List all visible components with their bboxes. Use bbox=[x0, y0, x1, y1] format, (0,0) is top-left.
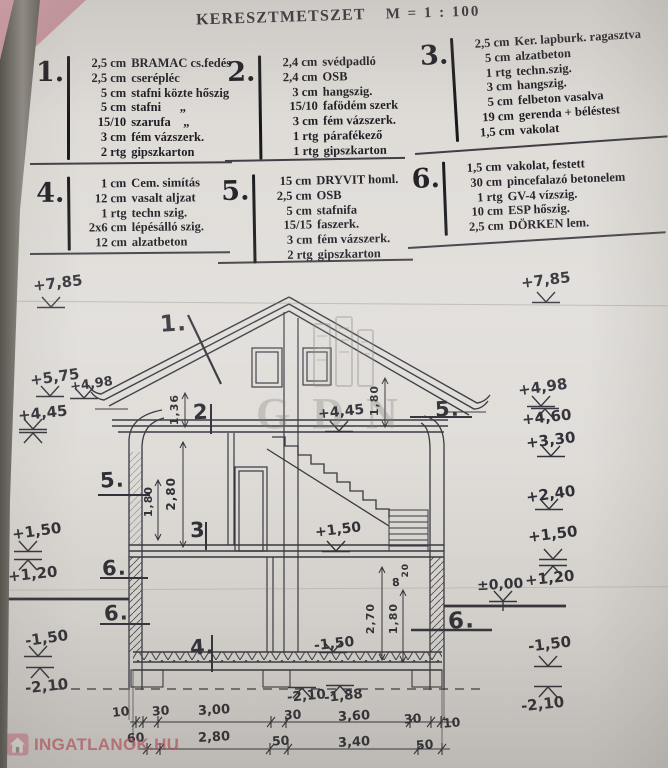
legend-item: 3 cmfém vázszerk. bbox=[74, 130, 231, 145]
list-divider-bar bbox=[67, 177, 71, 251]
layer-list-2: 2. 2,4 cmsvédpadló 2,4 cmOSB 3 cmhangszi… bbox=[227, 54, 399, 160]
dimension-value: 1,80 bbox=[143, 486, 154, 517]
legend-qty: 2,5 cm bbox=[74, 71, 131, 86]
chain-dimension: 10 bbox=[442, 716, 460, 730]
legend-text: DRYVIT homl. bbox=[316, 172, 398, 188]
chain-dimension: 3,00 bbox=[198, 703, 231, 718]
layer-list-number: 5. bbox=[221, 177, 254, 263]
layer-callout: 2 bbox=[192, 402, 209, 424]
legend-text: DÖRKEN lem. bbox=[508, 215, 589, 233]
legend-text: vakolat bbox=[519, 121, 559, 138]
legend-text: techn szig. bbox=[131, 205, 187, 220]
legend-qty: 15/10 bbox=[74, 115, 131, 130]
ingatlanok-logo: INGATLANOK.HU bbox=[6, 733, 179, 756]
layer-list-5: 5. 15 cmDRYVIT homl. 2,5 cmOSB 5 cmstafn… bbox=[221, 172, 400, 264]
chain-dimension: 50 bbox=[416, 738, 434, 752]
legend-text: gipszkarton bbox=[317, 246, 380, 262]
legend-qty: 2 rtg bbox=[74, 145, 131, 160]
list-divider-bar bbox=[252, 174, 257, 263]
legend-text: szarufa „ bbox=[131, 115, 189, 130]
watermark-logo bbox=[312, 316, 382, 390]
layer-callout: 3 bbox=[189, 520, 206, 542]
chain-dimension: 30 bbox=[284, 709, 302, 722]
legend-qty: 5 cm bbox=[74, 86, 131, 101]
legend-item: 2x6 cmlépésálló szig. bbox=[75, 220, 204, 236]
legend-text: gipszkarton bbox=[323, 143, 386, 159]
legend-text: fafödém szerk bbox=[323, 98, 399, 114]
legend-text: fém vázszerk. bbox=[323, 113, 396, 129]
legend-item: 2,5 cmBRAMAC cs.fedés bbox=[74, 56, 231, 71]
layer-callout: 6. bbox=[101, 557, 127, 579]
dimension-value: 1,36 bbox=[169, 394, 180, 425]
layer-list-6: 6. 1,5 cmvakolat, festett 30 cmpincefala… bbox=[411, 155, 627, 237]
dimension-value: 1,80 bbox=[388, 603, 399, 634]
legend-qty: 15/10 bbox=[266, 99, 323, 115]
legend-qty: 1 cm bbox=[74, 176, 131, 191]
legend-qty: 1 rtg bbox=[74, 206, 131, 221]
legend-qty: 5 cm bbox=[74, 100, 131, 115]
house-icon bbox=[6, 733, 29, 756]
list-divider-bar bbox=[258, 56, 262, 160]
legend-item: 1 cmCem. simítás bbox=[74, 175, 203, 191]
level-mark-symbols bbox=[14, 292, 567, 698]
layer-list-number: 6. bbox=[411, 165, 445, 237]
legend-item: 2,5 cmcserépléc bbox=[74, 71, 231, 86]
dimension-value: 1,80 bbox=[369, 385, 380, 416]
legend-text: párafékező bbox=[323, 128, 382, 144]
photographed-blueprint: KERESZTMETSZETM = 1 : 100 1. 2,5 cmBRAMA… bbox=[0, 0, 668, 768]
legend-item: 2 rtggipszkarton bbox=[260, 246, 399, 263]
layer-callout: 4. bbox=[189, 636, 215, 659]
layer-callout: 1. bbox=[159, 312, 187, 337]
legend-text: alzatbeton bbox=[132, 235, 188, 250]
layer-list-number: 2. bbox=[227, 59, 260, 160]
layer-callout: 6. bbox=[103, 602, 129, 625]
dimension-value: 2,80 bbox=[165, 477, 177, 511]
legend-text: stafni közte hőszig bbox=[131, 86, 229, 101]
layer-callout: 5. bbox=[434, 398, 460, 420]
legend-text: OSB bbox=[322, 69, 347, 84]
legend-qty: 3 cm bbox=[266, 84, 323, 100]
floor-slabs bbox=[112, 420, 448, 557]
layer-list-1: 1. 2,5 cmBRAMAC cs.fedés 2,5 cmcserépléc… bbox=[36, 56, 231, 160]
legend-qty: 12 cm bbox=[75, 235, 132, 250]
legend-qty: 12 cm bbox=[74, 191, 131, 206]
drawing-scale: M = 1 : 100 bbox=[385, 4, 480, 23]
brand-name: INGATLANOK.HU bbox=[34, 735, 179, 755]
basement-slab bbox=[55, 652, 480, 689]
legend-text: lépésálló szig. bbox=[132, 220, 204, 236]
legend-qty: 2,4 cm bbox=[265, 55, 322, 71]
title-text: KERESZTMETSZET bbox=[196, 6, 366, 28]
legend-text: vasalt aljzat bbox=[131, 190, 195, 205]
legend-qty: 15 cm bbox=[259, 173, 316, 189]
list-underline bbox=[30, 251, 230, 254]
chain-dimension: 50 bbox=[272, 735, 290, 748]
legend-text: stafnifa bbox=[317, 202, 358, 217]
legend-text: OSB bbox=[316, 188, 341, 203]
layer-list-4: 4. 1 cmCem. simítás 12 cmvasalt aljzat 1… bbox=[36, 175, 204, 251]
legend-qty: 2,5 cm bbox=[451, 218, 509, 235]
legend-text: cserépléc bbox=[131, 71, 180, 86]
drawing-title: KERESZTMETSZETM = 1 : 100 bbox=[196, 3, 481, 30]
layer-callout: 6. bbox=[447, 609, 475, 633]
legend-text: gipszkarton bbox=[131, 145, 194, 160]
legend-qty: 3 cm bbox=[260, 233, 317, 249]
legend-text: hangszig. bbox=[323, 84, 373, 99]
dimension-value: 8 bbox=[392, 577, 401, 589]
ground-lines bbox=[0, 599, 566, 606]
legend-item: 1 rtgtechn szig. bbox=[74, 205, 203, 221]
legend-item: 12 cmalzatbeton bbox=[75, 234, 204, 250]
legend-item: 5 cmstafni közte hőszig bbox=[74, 86, 231, 101]
dimension-value: 2,70 bbox=[365, 603, 376, 634]
layer-list-3: 3. 2,5 cmKer. lapburk. ragasztva 5 cmalz… bbox=[419, 27, 647, 144]
legend-item: 15/10szarufa „ bbox=[74, 115, 231, 130]
legend-qty: 1 rtg bbox=[266, 143, 323, 159]
chain-dimension: 2,80 bbox=[198, 730, 231, 745]
legend-qty: 2,4 cm bbox=[265, 69, 322, 85]
legend-qty: 5 cm bbox=[260, 203, 317, 219]
chain-dimension: 30 bbox=[152, 704, 170, 718]
legend-text: BRAMAC cs.fedés bbox=[131, 56, 231, 71]
chain-dimension: 10 bbox=[111, 705, 130, 719]
layer-callout: 5. bbox=[99, 469, 125, 491]
legend-text: Cem. simítás bbox=[131, 175, 200, 191]
legend-item: 5 cmstafni „ bbox=[74, 100, 231, 115]
legend-text: stafni „ bbox=[131, 100, 186, 115]
legend-item: 2 rtggipszkarton bbox=[74, 145, 231, 160]
elevation-label: -1,50 bbox=[313, 635, 355, 653]
list-underline bbox=[30, 161, 232, 164]
legend-qty: 1 rtg bbox=[266, 129, 323, 145]
legend-text: faszerk. bbox=[317, 217, 359, 233]
legend-qty: 2 rtg bbox=[260, 247, 317, 263]
legend-text: fém vázszerk. bbox=[131, 130, 204, 145]
elevation-label: -2,10 bbox=[24, 677, 69, 696]
walls bbox=[129, 410, 444, 690]
legend-qty: 2x6 cm bbox=[75, 220, 132, 235]
dimension-value: 20 bbox=[402, 563, 411, 578]
chimney bbox=[284, 312, 298, 652]
legend-qty: 3 cm bbox=[74, 130, 131, 145]
layer-list-number: 4. bbox=[36, 180, 68, 251]
legend-qty: 2,5 cm bbox=[74, 56, 131, 71]
chain-dimension: 3,40 bbox=[338, 735, 371, 750]
legend-item: 1 rtggipszkarton bbox=[266, 142, 399, 159]
legend-qty: 3 cm bbox=[266, 114, 323, 130]
layer-list-number: 1. bbox=[36, 59, 67, 160]
legend-qty: 2,5 cm bbox=[259, 188, 316, 204]
legend-text: svédpadló bbox=[322, 54, 376, 70]
legend-item: 12 cmvasalt aljzat bbox=[74, 190, 203, 206]
door bbox=[235, 467, 267, 551]
elevation-label: ±0,00 bbox=[477, 577, 524, 593]
list-divider-bar bbox=[67, 56, 70, 160]
legend-qty: 15/15 bbox=[260, 218, 317, 234]
elevation-label: -2,10 bbox=[286, 688, 326, 705]
chain-dimension: 3,60 bbox=[338, 709, 371, 724]
legend-text: fém vázszerk. bbox=[317, 231, 390, 247]
chain-dimension: 30 bbox=[404, 712, 422, 726]
elevation-label: -2,10 bbox=[520, 695, 565, 714]
legend-qty: 1,5 cm bbox=[462, 123, 520, 141]
